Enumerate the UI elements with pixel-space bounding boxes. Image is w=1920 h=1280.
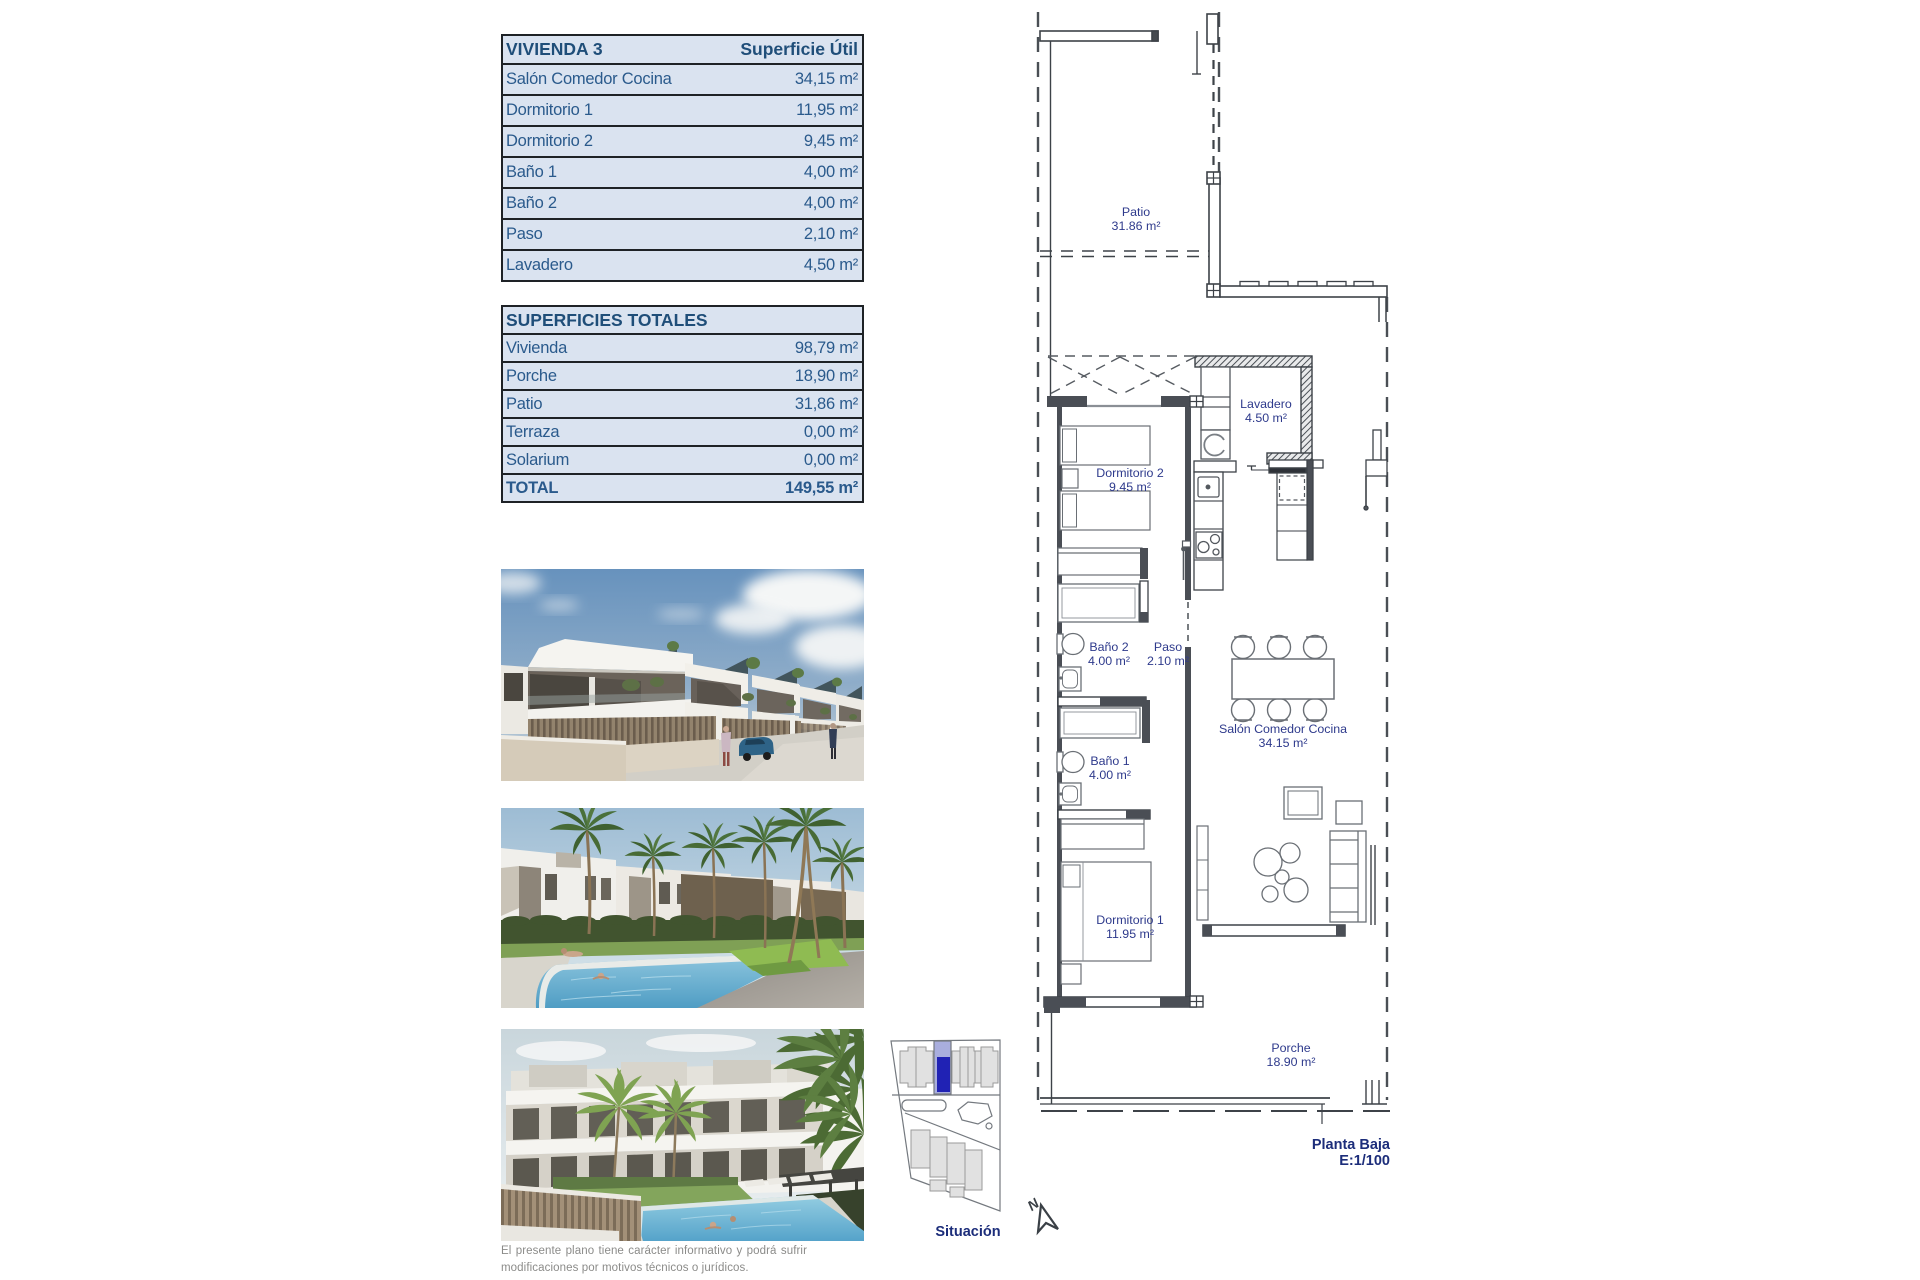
svg-text:Situación: Situación [935, 1224, 1000, 1240]
svg-text:4.00 m²: 4.00 m² [1088, 654, 1130, 668]
svg-text:Lavadero: Lavadero [1240, 397, 1292, 411]
svg-text:9.45 m²: 9.45 m² [1109, 480, 1151, 494]
svg-text:34.15 m²: 34.15 m² [1259, 736, 1308, 750]
svg-text:18.90 m²: 18.90 m² [1267, 1055, 1316, 1069]
svg-text:Paso: Paso [1154, 640, 1182, 654]
svg-text:E:1/100: E:1/100 [1339, 1153, 1390, 1169]
svg-text:31.86 m²: 31.86 m² [1112, 219, 1161, 233]
svg-text:Patio: Patio [1122, 205, 1150, 219]
svg-text:2.10 m²: 2.10 m² [1147, 654, 1189, 668]
svg-text:Dormitorio 1: Dormitorio 1 [1096, 913, 1164, 927]
svg-text:Planta Baja: Planta Baja [1312, 1137, 1391, 1153]
svg-text:Salón Comedor Cocina: Salón Comedor Cocina [1219, 722, 1347, 736]
svg-text:11.95 m²: 11.95 m² [1106, 927, 1154, 941]
svg-text:Porche: Porche [1271, 1041, 1310, 1055]
svg-text:Baño 1: Baño 1 [1090, 754, 1129, 768]
svg-text:Dormitorio 2: Dormitorio 2 [1096, 466, 1164, 480]
svg-text:Baño 2: Baño 2 [1089, 640, 1128, 654]
svg-text:4.00 m²: 4.00 m² [1089, 768, 1131, 782]
svg-text:4.50 m²: 4.50 m² [1245, 411, 1287, 425]
